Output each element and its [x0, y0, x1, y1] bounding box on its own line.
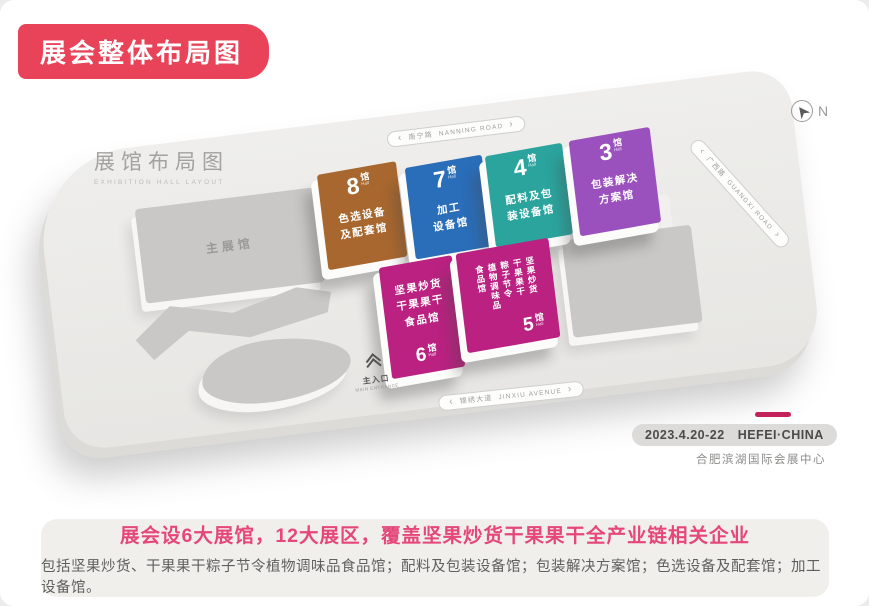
- compass-n-label: N: [818, 103, 828, 119]
- hall-6-name: 坚果炒货 干果果干 食品馆: [394, 275, 447, 332]
- summary-detail: 包括坚果炒货、干果果干粽子节令植物调味品食品馆；配料及包装设备馆；包装解决方案馆…: [41, 555, 829, 597]
- venue-name: 合肥滨湖国际会展中心: [696, 451, 826, 467]
- hall-4-number: 4 馆Hall: [512, 153, 538, 180]
- map-title-block: 展馆布局图 EXHIBITION HALL LAYOUT: [94, 146, 229, 186]
- road-arrow-left-icon: [397, 133, 403, 143]
- hall-5-panel: 坚果炒货 干果果干 粽子节令 植物调味品 食品馆 5 馆Hall: [456, 238, 561, 354]
- road-arrow-left-icon: [449, 397, 455, 407]
- main-hall-label: 主展馆: [205, 234, 255, 257]
- hall-5: 坚果炒货 干果果干 粽子节令 植物调味品 食品馆 5 馆Hall: [456, 238, 561, 354]
- hall-4-panel: 4 馆Hall 配料及包 装设备馆: [485, 143, 573, 248]
- summary-card: 展会设6大展馆，12大展区，覆盖坚果炒货干果果干全产业链相关企业 包括坚果炒货、…: [41, 519, 829, 597]
- hall-8-panel: 8 馆Hall 色选设备 及配套馆: [317, 161, 408, 270]
- poster: 展会整体布局图 主展馆 8 馆Hall 色选设备 及配套馆: [0, 0, 869, 606]
- road-arrow-right-icon: [772, 230, 782, 240]
- road-label-east: 广西路 GUANGXI ROAD: [687, 137, 792, 251]
- map-subtitle: EXHIBITION HALL LAYOUT: [94, 179, 229, 186]
- summary-headline: 展会设6大展馆，12大展区，覆盖坚果炒货干果果干全产业链相关企业: [120, 519, 750, 548]
- north-compass: N: [791, 100, 828, 122]
- hall-4-name: 配料及包 装设备馆: [505, 185, 556, 226]
- accent-bar: [755, 412, 791, 417]
- hall-4: 4 馆Hall 配料及包 装设备馆: [485, 143, 573, 248]
- hall-7-name: 加工 设备馆: [430, 198, 469, 237]
- hall-5-number: 5 馆Hall: [522, 313, 546, 336]
- event-date-badge: 2023.4.20-22 HEFEI·CHINA: [632, 424, 837, 446]
- map-title: 展馆布局图: [94, 146, 229, 176]
- hall-8: 8 馆Hall 色选设备 及配套馆: [317, 161, 408, 270]
- hall-6-number: 6 馆Hall: [415, 343, 439, 366]
- main-entrance-marker: 主入口 MAIN ENTRANCE: [351, 353, 399, 393]
- leaf-building-block: [198, 330, 354, 410]
- event-date: 2023.4.20-22: [645, 428, 725, 442]
- page-title: 展会整体布局图: [18, 24, 269, 79]
- hall-8-name: 色选设备 及配套馆: [338, 204, 389, 245]
- road-arrow-left-icon: [697, 147, 707, 157]
- event-location: HEFEI·CHINA: [738, 428, 824, 442]
- main-exhibition-hall-block: 主展馆: [135, 187, 325, 303]
- north-arrow-icon: [791, 100, 813, 122]
- road-arrow-right-icon: [567, 385, 573, 395]
- venue-map: 主展馆 8 馆Hall 色选设备 及配套馆: [33, 67, 823, 452]
- hall-3-number: 3 馆Hall: [598, 138, 624, 165]
- road-label-north: 南宁路 NANNING ROAD: [386, 115, 526, 148]
- road-arrow-right-icon: [509, 120, 515, 130]
- hall-7-number: 7 馆Hall: [432, 165, 458, 192]
- hall-3-panel: 3 馆Hall 包装解决 方案馆: [569, 127, 662, 237]
- hall-8-number: 8 馆Hall: [345, 172, 371, 199]
- hall-3: 3 馆Hall 包装解决 方案馆: [569, 127, 662, 237]
- hall-3-name: 包装解决 方案馆: [590, 170, 641, 211]
